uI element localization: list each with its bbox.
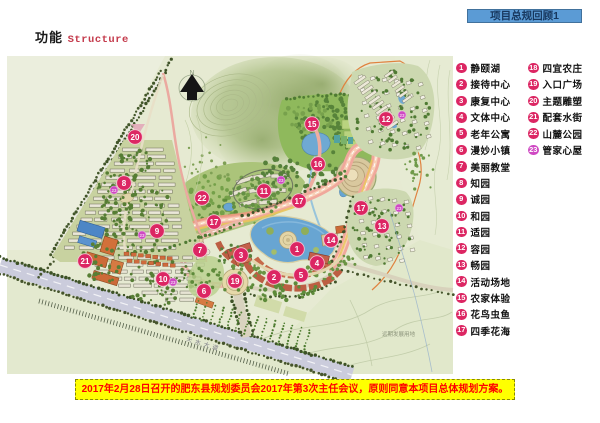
svg-text:17: 17 <box>357 204 366 213</box>
svg-text:16: 16 <box>314 160 323 169</box>
svg-text:11: 11 <box>260 187 269 196</box>
svg-text:12: 12 <box>382 115 391 124</box>
svg-text:9: 9 <box>155 227 160 236</box>
svg-text:5: 5 <box>299 271 304 280</box>
svg-text:20: 20 <box>131 133 140 142</box>
svg-text:6: 6 <box>202 287 207 296</box>
svg-text:4: 4 <box>315 259 320 268</box>
svg-text:23: 23 <box>396 206 402 211</box>
svg-text:23: 23 <box>278 178 284 183</box>
svg-text:14: 14 <box>327 236 336 245</box>
svg-text:23: 23 <box>170 280 176 285</box>
svg-text:10: 10 <box>159 275 168 284</box>
svg-text:17: 17 <box>295 197 304 206</box>
svg-text:7: 7 <box>198 246 203 255</box>
svg-text:23: 23 <box>399 113 405 118</box>
svg-text:3: 3 <box>239 251 244 260</box>
svg-text:2: 2 <box>272 273 277 282</box>
svg-text:17: 17 <box>210 218 219 227</box>
svg-text:15: 15 <box>308 120 317 129</box>
svg-text:23: 23 <box>111 188 117 193</box>
svg-text:8: 8 <box>122 179 127 188</box>
svg-text:23: 23 <box>139 233 145 238</box>
svg-text:22: 22 <box>198 194 207 203</box>
svg-text:远期发展用地: 远期发展用地 <box>382 330 416 338</box>
svg-text:13: 13 <box>378 222 387 231</box>
svg-text:21: 21 <box>81 257 90 266</box>
svg-text:1: 1 <box>295 245 300 254</box>
svg-text:19: 19 <box>231 277 240 286</box>
